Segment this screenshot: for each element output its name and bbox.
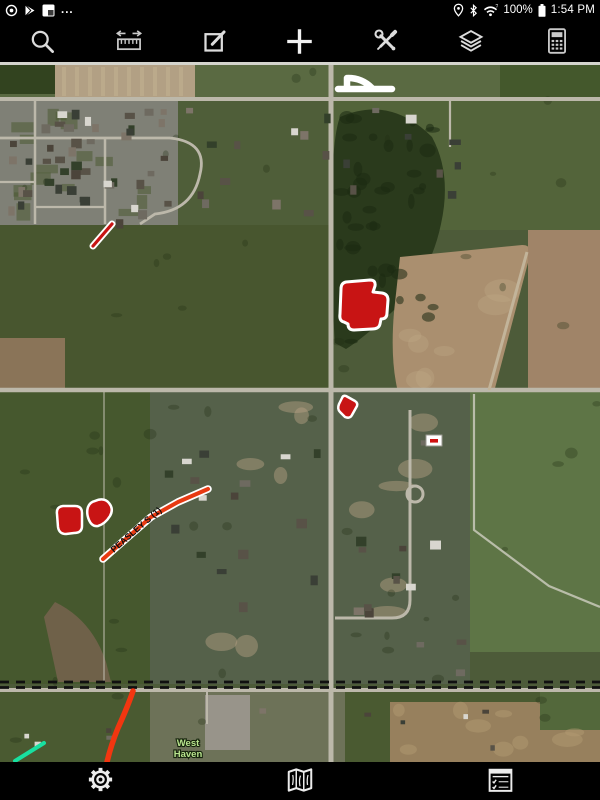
location-icon: [453, 3, 464, 17]
forms-button[interactable]: [400, 762, 600, 800]
svg-text:?: ?: [496, 4, 499, 10]
ruler-icon: [115, 28, 143, 54]
battery-icon: [538, 4, 546, 17]
map-marker-bar[interactable]: [430, 439, 438, 443]
clock: 1:54 PM: [551, 4, 595, 16]
map-view[interactable]: PEASLEY S (1) West Haven: [0, 62, 600, 762]
place-label-line1: West: [177, 738, 200, 749]
draw-button[interactable]: [184, 21, 244, 61]
plus-icon: [284, 26, 315, 57]
tools-icon: [372, 27, 400, 55]
layers-icon: [457, 27, 485, 55]
overflow-dots: ...: [61, 5, 74, 15]
bluetooth-icon: [469, 4, 478, 17]
field-polygon-left[interactable]: [57, 506, 82, 534]
map-button[interactable]: [200, 762, 400, 800]
add-button[interactable]: [270, 21, 330, 61]
search-icon: [29, 28, 56, 55]
app-notification-icon: [42, 4, 55, 17]
layers-button[interactable]: [441, 21, 501, 61]
satellite-imagery: [0, 62, 600, 762]
calculator-button[interactable]: [527, 21, 587, 61]
record-icon: [5, 4, 18, 17]
wifi-icon: ?: [483, 4, 498, 17]
search-button[interactable]: [13, 21, 73, 61]
play-icon: [24, 4, 36, 17]
gear-icon: [85, 764, 116, 798]
calculator-icon: [544, 27, 570, 55]
battery-percent: 100%: [503, 4, 532, 16]
edit-pencil-icon: [201, 28, 228, 55]
checklist-form-icon: [486, 766, 515, 797]
tools-button[interactable]: [356, 21, 416, 61]
place-label-line2: Haven: [174, 749, 203, 760]
bottom-toolbar: [0, 762, 600, 800]
status-bar: ... ? 100% 1:54 PM: [0, 0, 600, 20]
settings-button[interactable]: [0, 762, 200, 800]
satellite-map[interactable]: PEASLEY S (1) West Haven: [0, 62, 600, 762]
measure-button[interactable]: [99, 21, 159, 61]
folded-map-icon: [285, 766, 315, 797]
top-toolbar: [0, 20, 600, 62]
